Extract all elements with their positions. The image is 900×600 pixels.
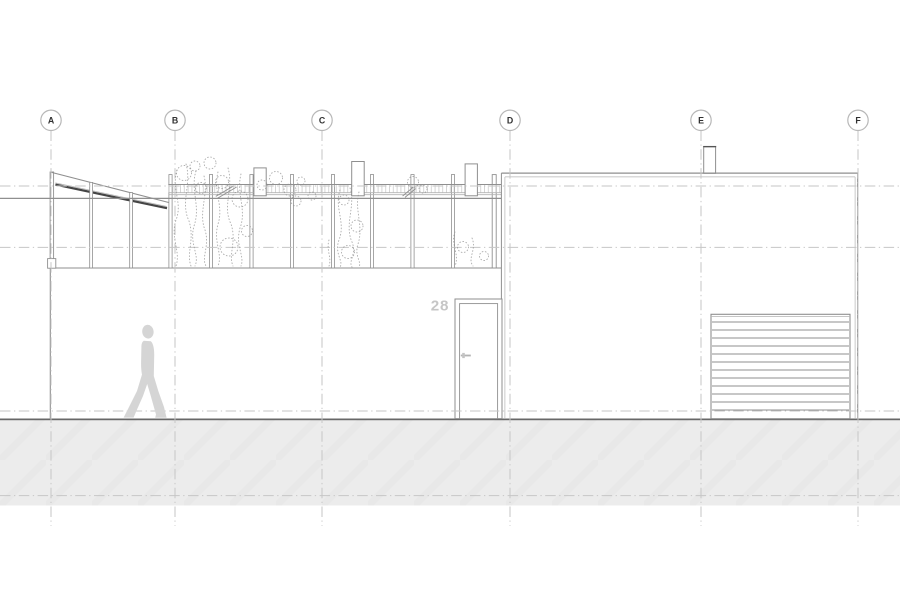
door-number-label: 28 (431, 298, 450, 315)
ground-band-texture (0, 420, 900, 505)
grid-marker-d: D (500, 110, 520, 130)
vine-cluster (174, 161, 206, 266)
grid-markers: A B C D E F (41, 110, 868, 130)
walking-person-figure (124, 324, 167, 418)
svg-text:A: A (48, 115, 55, 125)
svg-text:E: E (698, 115, 704, 125)
roof-vent-box (465, 164, 477, 196)
grid-marker-e: E (691, 110, 711, 130)
canopy-post-foot (48, 259, 56, 269)
canopy-under-edge (55, 183, 167, 207)
grid-marker-f: F (848, 110, 868, 130)
svg-text:B: B (172, 115, 178, 125)
door-handle-rose (462, 353, 465, 358)
pergola (0, 162, 502, 269)
entry-door (455, 299, 502, 419)
grid-marker-b: B (165, 110, 185, 130)
ground (0, 419, 900, 505)
lower-wall (50, 268, 501, 419)
vine-cluster (454, 232, 489, 266)
garage-door (711, 314, 850, 418)
architectural-elevation-sheet: 28 A B (0, 0, 900, 600)
figure-body (124, 341, 167, 418)
roof-vent-box (352, 162, 365, 196)
elevation-drawing: 28 A B (0, 0, 900, 600)
canopy-post (130, 193, 133, 268)
roof-vent-box (254, 168, 266, 196)
figure-head (141, 324, 154, 339)
door-leaf (460, 304, 498, 419)
svg-text:D: D (507, 115, 513, 125)
chimney (704, 147, 716, 174)
svg-text:F: F (855, 115, 861, 125)
grid-marker-a: A (41, 110, 61, 130)
svg-text:C: C (319, 115, 326, 125)
canopy-post (90, 182, 93, 268)
grid-marker-c: C (312, 110, 332, 130)
